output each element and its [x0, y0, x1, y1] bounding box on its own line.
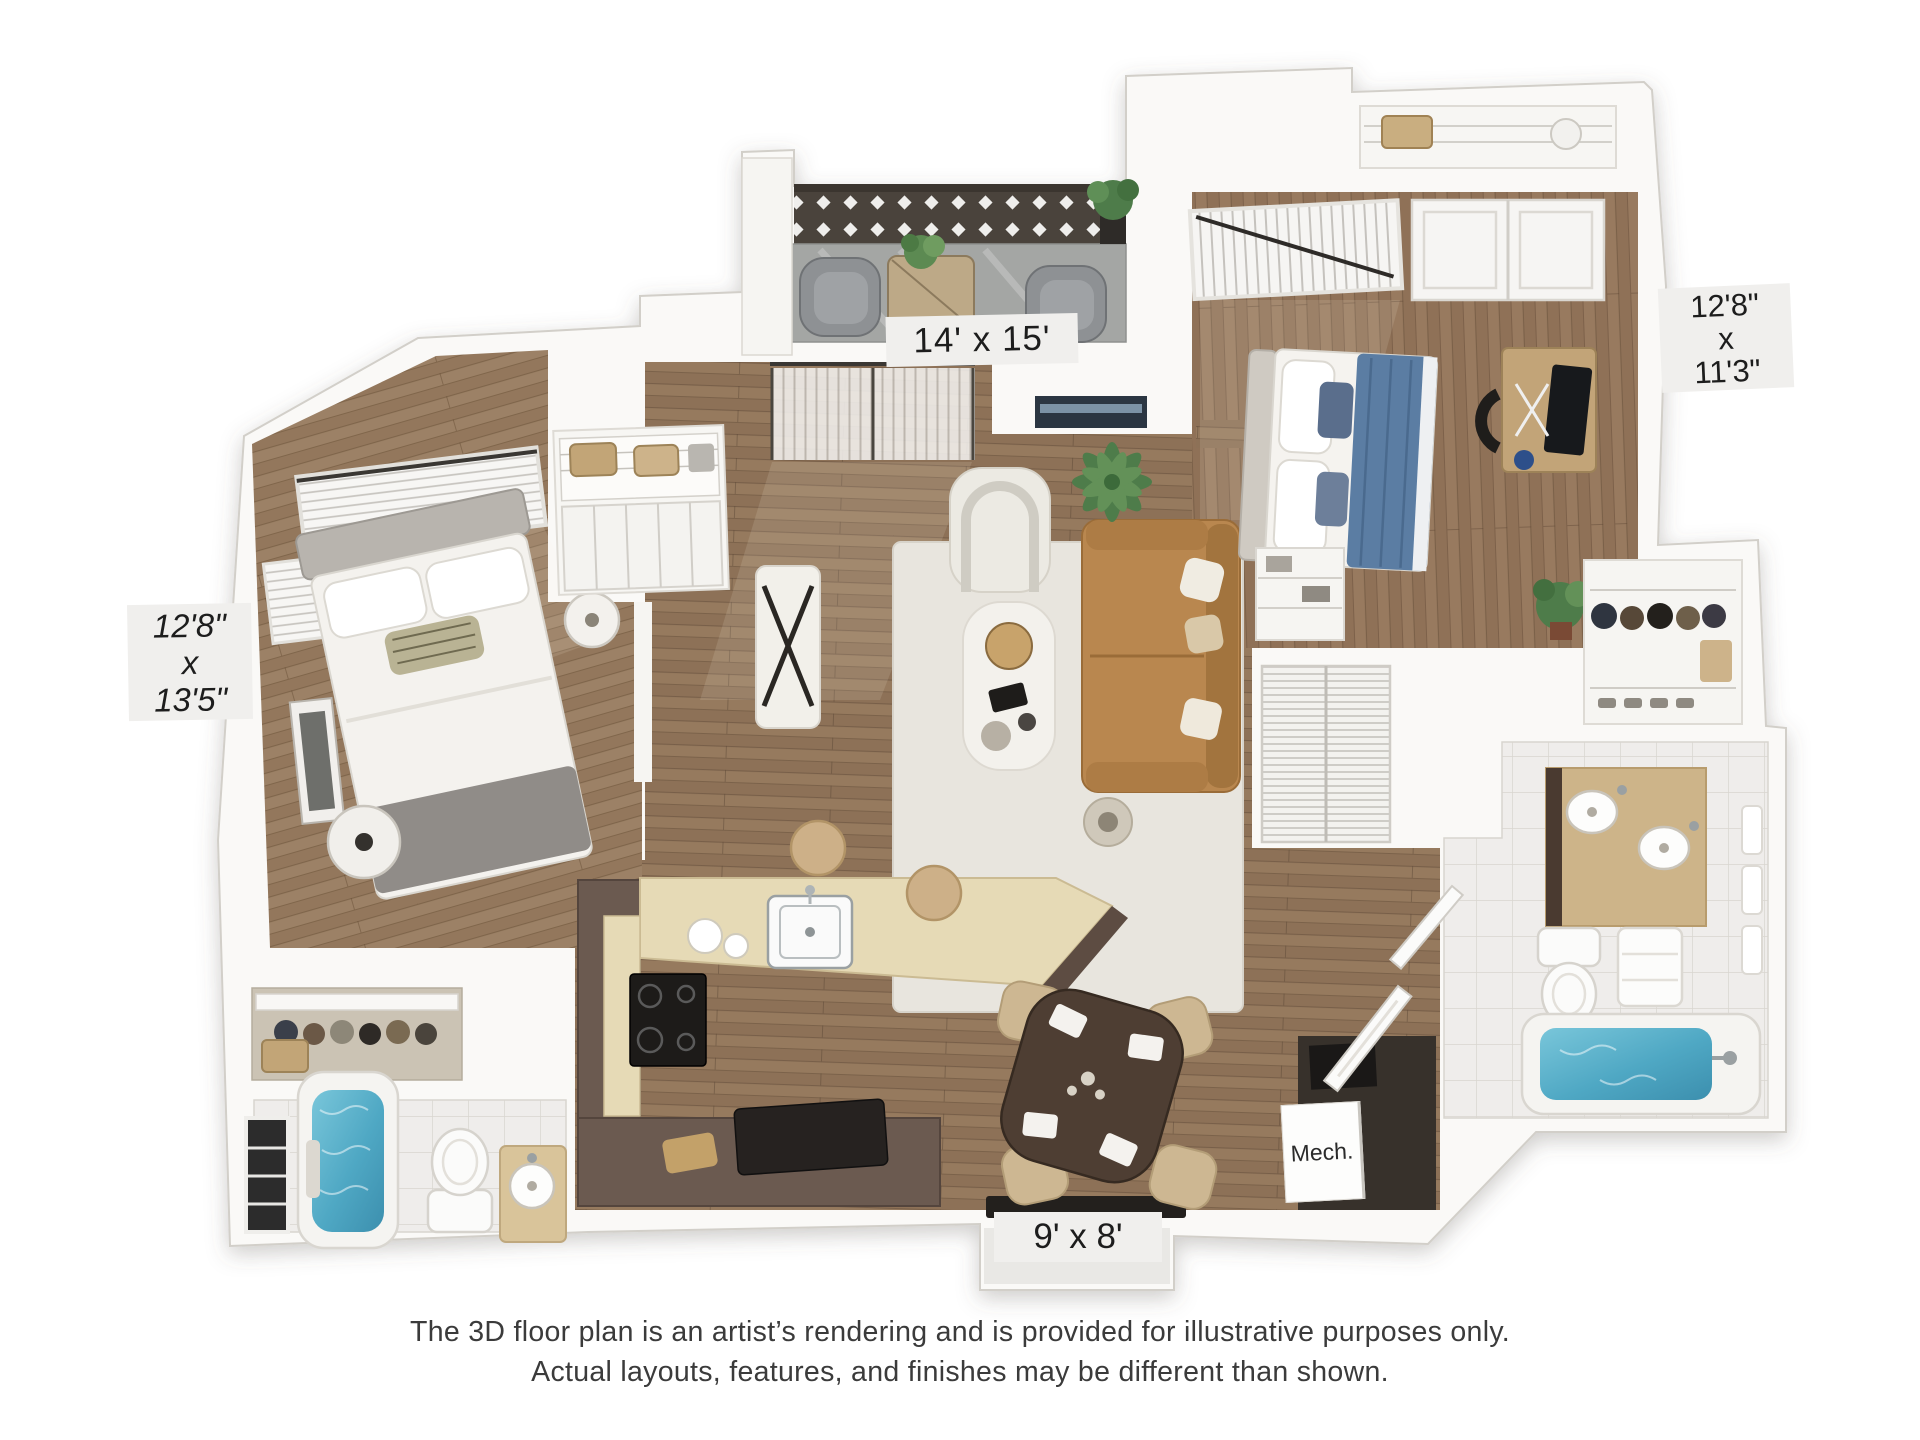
plate: [688, 919, 722, 953]
bathroom-window: [246, 1118, 288, 1232]
dimension-separator: x: [1718, 321, 1735, 355]
closet-doors: [1412, 200, 1604, 300]
accent-pillow: [1315, 471, 1350, 527]
dimension-separator: x: [181, 643, 198, 680]
storage-box: [1382, 116, 1432, 148]
dimension-length: 11'3": [1694, 353, 1762, 389]
balcony-lattice: [794, 192, 1126, 244]
disclaimer-line-1: The 3D floor plan is an artist’s renderi…: [0, 1312, 1920, 1352]
balcony-pillar: [742, 158, 792, 355]
floor-plan-svg: [0, 0, 1920, 1440]
bed: [1239, 348, 1438, 572]
coffee-table: [963, 602, 1055, 770]
side-table-lamp: [1084, 798, 1132, 846]
double-vanity: [1546, 768, 1706, 926]
floor-plan-image: 14' x 15' 12'8" x 11'3" 12'8" x 13'5" 9'…: [0, 0, 1920, 1440]
towels: [1742, 806, 1762, 974]
balcony-chair: [800, 258, 880, 336]
towel: [306, 1140, 320, 1198]
kitchen-bar-console: [734, 1099, 888, 1175]
bathtub: [298, 1072, 398, 1248]
desk-bowl: [1514, 450, 1534, 470]
wall-art-detail: [1040, 404, 1142, 413]
dimension-width: 12'8": [152, 606, 226, 644]
palm-plant-icon: [1072, 442, 1152, 522]
bedroom-right-top-closet: [1360, 106, 1616, 168]
hall-closet: [553, 425, 729, 595]
basket: [634, 445, 679, 477]
sofa-pillow: [1178, 696, 1223, 741]
shelf-unit: [1256, 548, 1344, 640]
basket: [262, 1040, 308, 1072]
folded-linens: [688, 443, 715, 472]
hall-wall-segment: [634, 602, 652, 782]
place-setting: [1022, 1112, 1058, 1139]
mech-room-label: Mech.: [1280, 1101, 1365, 1203]
laundry-closet: [1262, 666, 1390, 842]
label-living-room-dimensions: 14' x 15': [885, 313, 1078, 367]
towel-cabinet: [1618, 928, 1682, 1006]
disclaimer-line-2: Actual layouts, features, and finishes m…: [0, 1352, 1920, 1392]
console-table: [756, 566, 820, 728]
basket: [570, 443, 617, 477]
toilet: [1538, 928, 1600, 1025]
bedroom-right-window: [1190, 200, 1402, 299]
label-bedroom-right-dimensions: 12'8" x 11'3": [1658, 283, 1794, 393]
accent-pillow: [1317, 381, 1354, 439]
folded-stack: [1700, 640, 1732, 682]
closet-shelf: [256, 994, 458, 1010]
kitchen-sink: [768, 885, 852, 968]
dimension-width: 12'8": [1690, 287, 1760, 323]
bar-stool: [907, 866, 961, 920]
toilet: [428, 1129, 492, 1232]
dimension-length: 13'5": [154, 680, 228, 718]
armchair: [950, 468, 1050, 592]
closet-doors: [562, 501, 723, 590]
nightstand: [328, 806, 400, 878]
plate: [724, 934, 748, 958]
bar-stool: [791, 821, 845, 875]
vanity-sink: [500, 1146, 566, 1242]
sofa: [1082, 520, 1240, 792]
label-bedroom-left-dimensions: 12'8" x 13'5": [127, 603, 253, 721]
stove: [630, 974, 706, 1066]
closet-left: [252, 988, 462, 1080]
place-setting: [1127, 1033, 1164, 1061]
label-patio-dimensions: 9' x 8': [994, 1212, 1162, 1262]
sofa-pillow: [1183, 613, 1225, 655]
bathtub: [1522, 1014, 1760, 1114]
bedding-roll: [1551, 119, 1581, 149]
drum-table: [565, 593, 619, 647]
walk-in-closet: [1584, 560, 1742, 724]
disclaimer-text: The 3D floor plan is an artist’s renderi…: [0, 1312, 1920, 1392]
